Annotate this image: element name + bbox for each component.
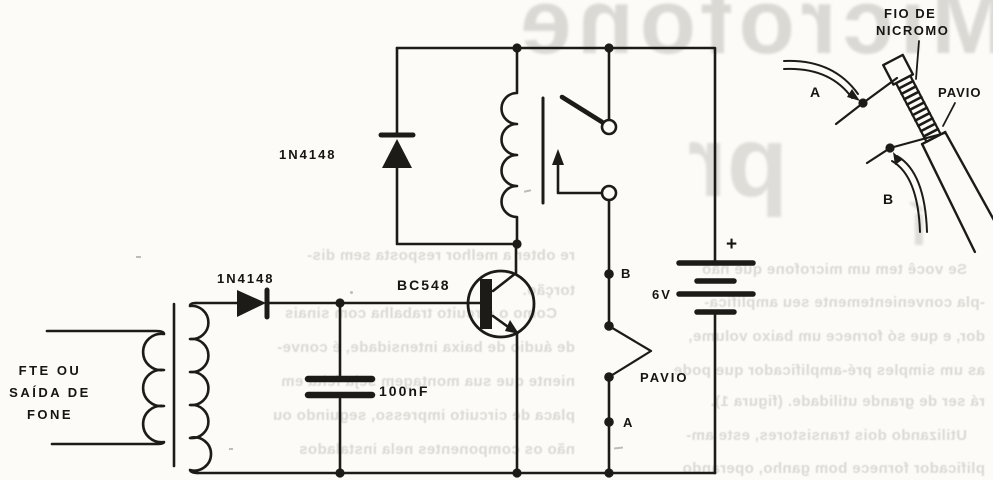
switch-blade [562,97,602,122]
nichrome-wire-segment [896,76,941,142]
transformer-secondary [190,303,211,473]
terminal-a-dot [858,98,867,107]
inset-terminal-b-label: B [883,191,895,207]
igniter-inset [784,41,993,252]
fuse-label: PAVIO [640,370,689,385]
nichrome-label-line2: NICROMO [876,23,949,38]
terminal-b-dot [885,143,894,152]
transistor-label: BC548 [397,277,451,293]
transistor-collector [493,244,516,291]
battery-plus-label: + [726,234,737,256]
inset-terminal-a-label: A [810,84,822,100]
nicromo-leader-line [916,41,919,79]
switch-contact-bottom [602,186,616,200]
nichrome-label-line1: FIO DE [884,6,936,21]
point-b-label: B [621,266,632,281]
circuit-schematic [0,0,993,480]
relay-diode-1n4148 [381,48,517,244]
capacitor-100nf [308,303,372,473]
input-source-line1: FTE OU [0,360,100,382]
battery-6v [679,263,753,473]
lead-b-arrow [892,152,927,232]
wick-label: PAVIO [938,85,982,100]
capacitor-label: 100nF [379,383,429,399]
pavio-leader-line [943,103,955,126]
relay-switch [552,48,616,326]
relay-diode-label: 1N4148 [279,147,337,162]
input-source-label: FTE OU SAÍDA DE FONE [0,360,100,426]
point-a-label: A [623,415,634,430]
transistor-bc548 [468,244,534,473]
input-diode-label: 1N4148 [217,271,275,286]
emitter-arrow-icon [505,320,519,334]
battery-voltage-label: 6V [652,287,672,302]
transistor-base-bar [480,279,492,329]
wick-body [919,131,993,252]
relay-coil [502,48,544,244]
junction-dots [335,43,613,477]
scanned-schematic-page: Microfone pr í re obter a melhor respost… [0,0,993,480]
input-source-line2: SAÍDA DE [0,382,100,404]
igniter-tip [883,55,913,85]
armature-arrow-icon [552,149,564,165]
input-source-line3: FONE [0,404,100,426]
fuse-branch [609,326,651,473]
